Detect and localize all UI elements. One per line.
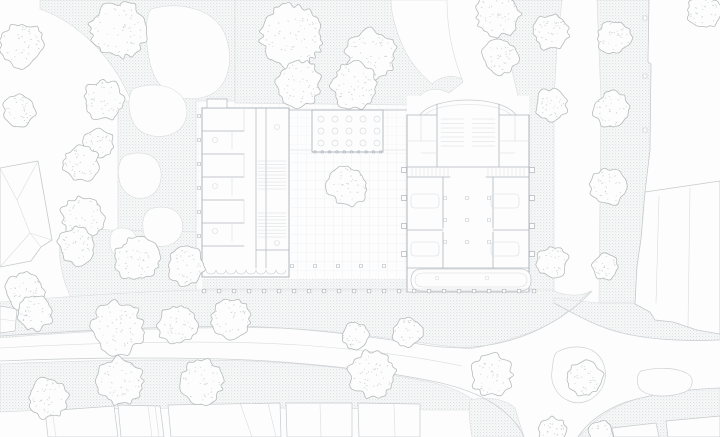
main-building-right-wing — [402, 96, 535, 292]
roads-shape — [637, 368, 692, 396]
site-plan-page — [0, 0, 720, 437]
main-building-right-wing-shape — [411, 269, 531, 291]
main-building-left-wing-shape — [202, 108, 289, 277]
main-building-left-wing-shape — [207, 99, 227, 108]
tree — [687, 0, 720, 27]
site-plan-drawing — [0, 0, 720, 437]
bottom-buildings-shape — [168, 403, 281, 437]
main-building-left-wing — [198, 99, 290, 277]
right-neighbor-building-shape — [635, 181, 720, 334]
tree-canopy — [687, 0, 720, 27]
bottom-buildings-shape — [358, 403, 420, 437]
bottom-buildings-shape — [286, 403, 352, 437]
garden-paths-shape — [118, 153, 161, 198]
garden-paths-shape — [129, 85, 187, 136]
